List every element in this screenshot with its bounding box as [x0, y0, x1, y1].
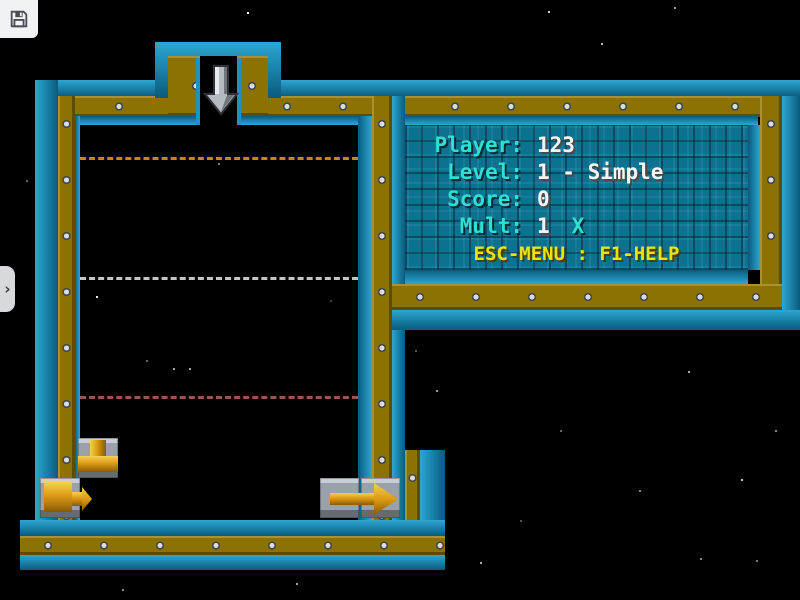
score-value: 0 — [537, 186, 550, 213]
hud-row-mult: Mult: 1 X — [405, 213, 748, 240]
hud-row-level: Level: 1 - Simple — [405, 159, 748, 186]
hud-help-line: ESC-MENU : F1-HELP — [405, 243, 748, 265]
sidebar-expand-tab[interactable]: › — [0, 266, 15, 312]
pipe-exit-arrow — [320, 478, 400, 518]
guide-line-upper — [80, 157, 358, 160]
hud-panel: Player: 123 Level: 1 - Simple Score: 0 M… — [405, 125, 748, 270]
hud-row-score: Score: 0 — [405, 186, 748, 213]
chevron-right-icon: › — [4, 280, 10, 298]
game-screen: Player: 123 Level: 1 - Simple Score: 0 M… — [0, 0, 800, 600]
level-label: Level: — [405, 159, 523, 186]
pipe-start-piece — [40, 478, 92, 518]
guide-line-lower — [80, 396, 358, 399]
frame-band — [782, 96, 800, 330]
mult-value: 1 — [537, 213, 550, 240]
chute-edge — [196, 58, 200, 125]
frame-band — [760, 96, 782, 310]
player-label: Player: — [405, 132, 523, 159]
frame-band — [748, 125, 760, 270]
score-label: Score: — [405, 186, 523, 213]
frame-band — [358, 116, 372, 520]
frame-band — [35, 80, 58, 536]
pipe-t-piece — [78, 438, 118, 478]
level-value: 1 - Simple — [537, 159, 663, 186]
frame-band — [58, 96, 75, 536]
frame-band — [372, 96, 392, 536]
frame-band — [20, 555, 445, 570]
well-interior[interactable] — [80, 125, 358, 520]
guide-line-middle — [80, 277, 358, 280]
mult-label: Mult: — [405, 213, 523, 240]
frame-band — [392, 310, 800, 330]
save-button[interactable] — [0, 0, 38, 38]
frame-band — [20, 536, 445, 555]
mult-suffix: X — [572, 213, 585, 240]
save-icon — [8, 8, 30, 30]
frame-band — [35, 80, 800, 97]
drop-arrow-icon — [203, 64, 239, 116]
frame-band — [20, 520, 445, 536]
player-value: 123 — [537, 132, 575, 159]
frame-band — [405, 270, 748, 284]
frame-band — [392, 284, 782, 310]
hud-row-player: Player: 123 — [405, 132, 748, 159]
